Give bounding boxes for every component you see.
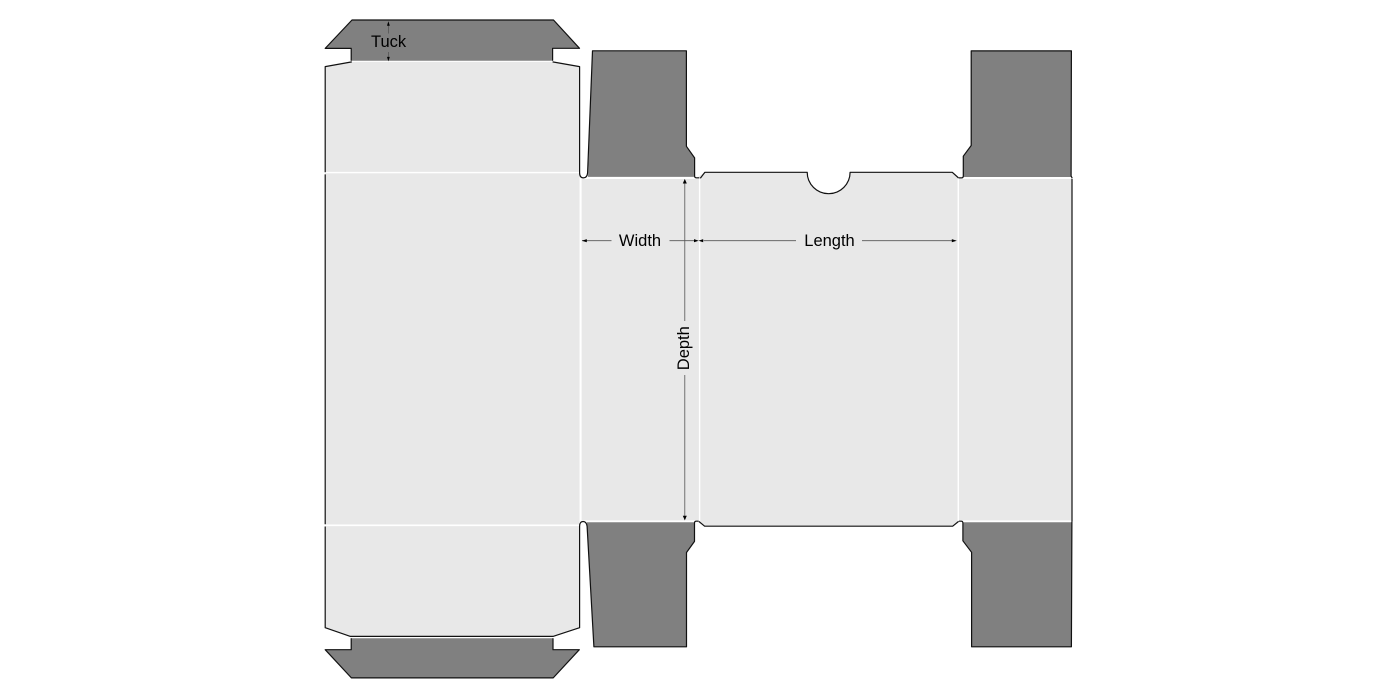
svg-text:Depth: Depth: [675, 326, 693, 370]
svg-text:Width: Width: [619, 232, 661, 250]
svg-text:Tuck: Tuck: [371, 33, 407, 51]
svg-text:Length: Length: [804, 232, 854, 250]
